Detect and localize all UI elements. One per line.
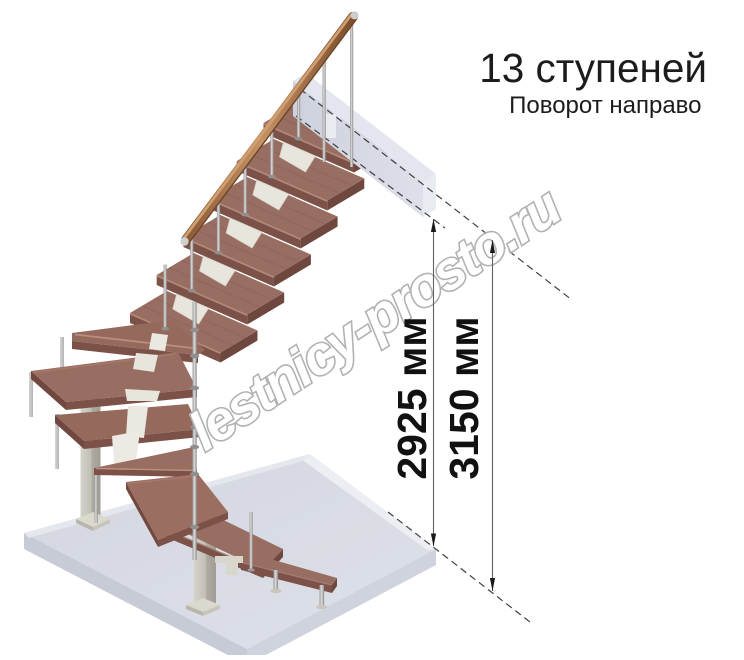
svg-text:Поворот направо: Поворот направо <box>509 92 701 119</box>
svg-text:3150 мм: 3150 мм <box>441 316 487 479</box>
svg-text:13 ступеней: 13 ступеней <box>479 45 707 91</box>
svg-text:2925 мм: 2925 мм <box>389 316 435 479</box>
